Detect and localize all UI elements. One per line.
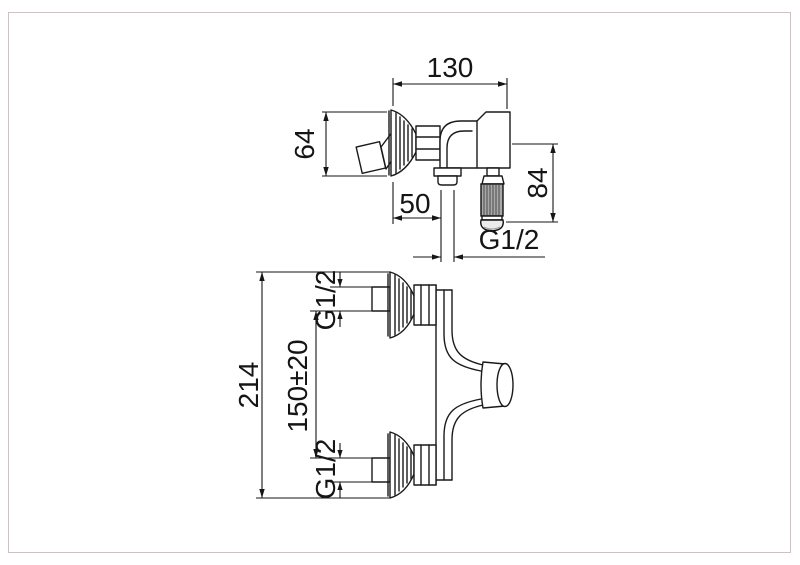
- side-lever-handle: [481, 168, 504, 231]
- dim-label-handle-84: 84: [524, 167, 552, 198]
- dim-label-width-130: 130: [427, 54, 474, 82]
- front-bottom-inlet: [372, 432, 436, 498]
- side-outlet: [434, 168, 461, 185]
- dim-label-spacing-150: 150±20: [284, 339, 312, 432]
- dim-label-flange-64: 64: [291, 128, 319, 159]
- side-wall-flange: [389, 110, 416, 176]
- dim-label-outlet-thread: G1/2: [479, 226, 540, 254]
- dim-label-top-inlet-thread: G1/2: [312, 270, 340, 331]
- drawing-linework: [0, 0, 800, 565]
- front-handle-knob: [481, 362, 513, 408]
- dim-label-offset-50: 50: [399, 190, 430, 218]
- front-top-inlet: [372, 272, 436, 338]
- dim-150: [310, 311, 372, 458]
- front-body: [436, 285, 483, 485]
- side-hex-nut: [416, 126, 440, 160]
- dim-label-height-214: 214: [235, 362, 263, 409]
- dim-label-bottom-inlet-thread: G1/2: [312, 439, 340, 500]
- technical-drawing-canvas: 130 64 50 84 G1/2 214 150±20 G1/2 G1/2: [0, 0, 800, 565]
- side-valve-body: [440, 112, 510, 168]
